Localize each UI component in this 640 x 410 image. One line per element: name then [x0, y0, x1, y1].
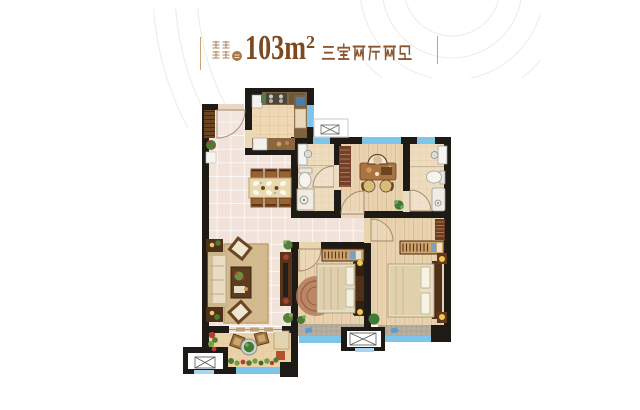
svg-text:103m: 103m	[245, 28, 306, 67]
svg-text:2: 2	[306, 32, 315, 52]
